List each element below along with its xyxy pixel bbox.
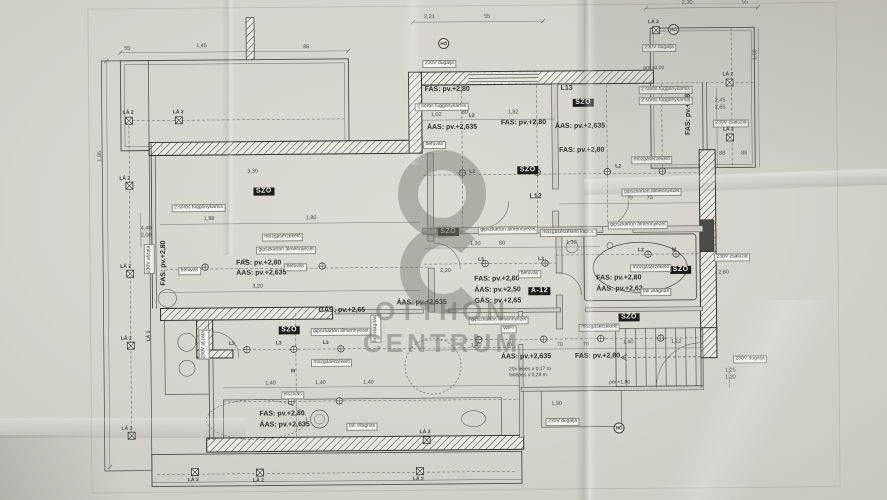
wall-light-note: fali világítás [347,423,378,431]
lamp-label: LÁ 2 [253,479,264,485]
lamp-label: L3 [229,342,235,348]
air-inflow-note: befúvás [518,270,541,278]
dim-label: 1,40 [363,380,374,386]
air-inflow-note: befúvás [178,267,201,275]
photographed-floor-plan: FAS: pv.+2,80 ÁAS: pv.+2,635 FAS: pv.+2,… [0,0,887,500]
wall-light-note: fali világítás [371,315,382,343]
dim-label: 70 [506,342,512,348]
dim-label: 3,30 [247,169,258,175]
curtain-note: 2 soros függönykarnis [172,204,226,212]
ceiling-note: gipszkarton álmennyezet [256,246,316,254]
dim-label: 2,80 [718,270,729,276]
floor-plan-drawing [0,0,887,500]
lamp-label: L2 [469,170,475,176]
stair-note: fellépés x 0,28 m [509,373,547,379]
szo-tag: SZÖ [573,99,594,107]
room-label: L12 [530,193,542,201]
ceiling-note: gipszkarton álmennyezet [608,221,668,229]
dim-label: 88 [303,44,309,50]
dim-label: 2,45 [715,98,726,104]
lamp-label: L3 [478,258,484,264]
lamp-label: L3 [323,341,329,347]
dim-label: 1,02 [431,112,442,118]
electric-lines [126,27,758,474]
outlet-note: 230V aljzata [199,330,210,360]
lamp-label: LÁ 2 [123,111,134,117]
socket-note: 230V dugalja [545,418,579,426]
socket-note: 230V dugalja [422,60,456,68]
heat-detector-marker: HŐ [668,24,679,35]
dim-label: 88 [719,151,725,157]
dim-label: 3,20 [252,284,263,290]
lamp-label: LÁ 2 [420,430,431,436]
lamp-label: LÁ 1 [147,331,153,342]
dim-label: 2,20 [440,268,451,274]
dim-label: 2,00 [141,233,152,239]
dim-label: 1,85 [97,151,103,162]
level-label: FAS: pv.+2,80 [596,274,641,282]
szo-tag: SZÖ [670,266,691,274]
lamp-label: LÁ 2 [173,110,184,116]
dim-label: 1,20 [725,374,736,380]
dim-label: 1,40 [265,380,276,386]
lamp-label: LÁ 2 [723,127,734,133]
lamp-label: M [291,369,295,375]
a12-tag: A-12 [528,287,550,295]
dim-label: 80 [462,110,468,116]
heat-detector-marker: HŐ [438,38,449,49]
dim-label: 1,88 [204,216,215,222]
lamp-label: L2 [638,248,644,254]
dim-label: 1,90 [551,401,562,407]
lamp-label: LÁ 2 [122,427,133,433]
socket-note: 230V dugalja [733,355,767,363]
curtain-note: 2 soros függönykarnis [639,86,693,94]
lamp-label: LÁ 2 [121,337,132,343]
lamp-label: LÁ 2 [119,177,130,183]
level-label: GÁS: pv.+2,65 [318,307,365,315]
lamp-label: L2 [469,114,475,120]
air-inflow-note: befúvás [423,141,446,149]
szo-tag: SZÖ [253,187,274,195]
outlet-note: 230V aljzata [144,245,155,275]
ceiling-note: gipszkarton álmennyezet [469,316,529,324]
air-inflow-note: befúvás [284,263,307,271]
motion-sensor-note: mozgásérzékelő [631,156,672,164]
dim-label: 1,80 [306,215,317,221]
dim-label: 2,30 [682,0,693,6]
motion-sensor-note: mozgásérzékelő [579,323,620,331]
dim-label: 90 [242,259,248,265]
dim-label: 1,25 [725,367,736,373]
dim-label: 1,40 [471,343,482,349]
dim-label: 55 [484,14,490,20]
dim-label: 2,21 [424,14,435,20]
dim-label: 70 [583,342,589,348]
level-label: ÁAS: pv.+2,635 [427,124,477,132]
lamp-label: LÁ 2 [722,72,733,78]
dim-label: 1,45 [196,43,207,49]
level-label: FAS: pv.+2,80 [160,240,168,285]
shutter-note: 230V zsaluzia [714,253,750,261]
level-label: pm ±0,00 [643,66,664,72]
szo-tag: SZÖ [517,166,538,174]
lamp-label: L3 [276,341,282,347]
level-label: FAS: pv.+2,80 [559,147,604,155]
lamp-label: L2 [615,164,621,170]
level-label: GÁS: pv.+2,65 [474,297,521,305]
lamp-label: LÁ 2 [648,20,659,26]
motion-sensor-note: mozgásérzékelő [262,233,303,241]
dim-label: 1,50 [752,49,758,60]
level-label: ÁAS: pv.+2,635 [555,123,605,131]
dim-label: 1,40 [623,339,634,345]
level-label: FAS: pv.+2,80 [501,119,546,127]
dim-label: 70 [557,342,563,348]
lamp-label: LÁ 2 [188,478,199,484]
level-label: ÁAS: pv.+2,635 [396,299,446,307]
socket-note: 230V dugalja [642,44,676,52]
szo-tag: SZÖ [279,326,300,334]
wall-light-note: fali világítás [640,288,671,296]
szo-tag: SZÖ [438,228,459,236]
plan-sheet: FAS: pv.+2,80 ÁAS: pv.+2,635 FAS: pv.+2,… [0,0,887,500]
level-label: ÁAS: pv.+2,62 [596,285,642,293]
motion-sensor-note: mozgásérzékelő [630,264,671,272]
level-label: ÁAS: pv.+2,50 [474,286,520,294]
level-label: FAS: pv.+2,80 [425,86,470,94]
lamp-label: M [672,248,676,254]
dim-label: 1,30 [470,241,481,247]
dim-label: 55 [124,46,130,52]
level-label: ÁAS: pv.+2,635 [259,421,309,429]
dim-label: 1,40 [315,380,326,386]
dim-label: 4,40 [141,226,152,232]
motion-sensor-note: mozgásérzékelő [311,359,352,367]
szo-tag: SZÖ [619,313,640,321]
air-extract-note: elszívás [281,391,304,399]
dim-label: 1,12 [671,339,682,345]
dim-label: 70 [627,195,633,201]
dim-label: 88 [741,150,747,156]
curtain-note: 2 soros függönykarnis [639,97,693,105]
level-label: FAS: pv.+2,80 [474,275,519,283]
level-label: pm +1,00 [609,380,630,386]
lamp-label: LÁ 2 [120,265,131,271]
dim-label: 70 [647,195,653,201]
heat-detector-marker: HŐ [614,422,625,433]
level-label: FAS: pv.+2,80 [575,352,620,360]
lamp-label: LÁ 2 [413,477,424,483]
lamp-label: L3 [538,257,544,263]
curtain-note: 2 soros függönykarnis [415,103,469,111]
dim-label: 1,82 [508,109,519,115]
level-label: ÁAS: pv.+2,635 [236,269,286,277]
ceiling-note: gipszkarton álmennyezet [478,226,538,234]
dim-label: 80 [499,240,505,246]
ceiling-note: gipszkarton álmennyezet [311,328,371,336]
dim-label: 2,65 [715,105,726,111]
wifi-note: WIFI [501,325,517,333]
level-label: FAS: pv.+2,80 [259,410,304,418]
dim-label: 55 [742,0,748,6]
motion-switch-note: mozgásérzékelő kapcs. [540,229,597,237]
room-label: L13 [561,85,573,93]
level-label: ÁAS: pv.+2,635 [501,353,551,361]
dim-label: 1,30 [566,240,577,246]
